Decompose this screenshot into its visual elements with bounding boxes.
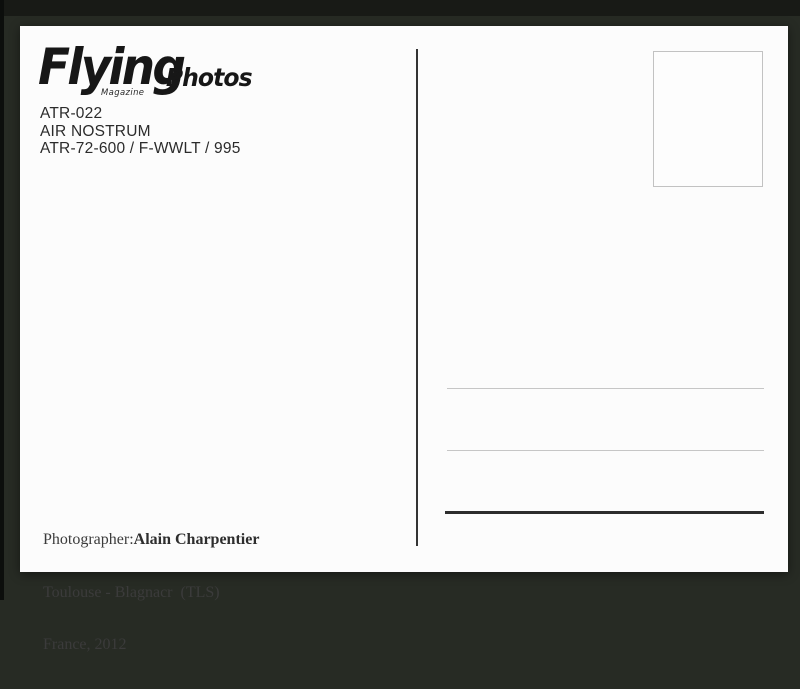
- postcard-back: Flying Photos Magazine ATR-022 AIR NOSTR…: [20, 26, 788, 572]
- brand-suffix: Photos: [166, 65, 252, 90]
- location-line: Toulouse - Blagnacr (TLS): [43, 584, 259, 602]
- date-line: France, 2012: [43, 636, 259, 654]
- photographer-line: Photographer:Alain Charpentier: [43, 531, 259, 549]
- brand-logo: Flying Photos Magazine: [38, 42, 264, 102]
- bottom-rule-line: [445, 511, 764, 514]
- photo-reference: ATR-022: [40, 105, 241, 123]
- address-line-2: [447, 450, 764, 451]
- credits-block: Photographer:Alain Charpentier Toulouse …: [43, 496, 259, 689]
- brand-tagline: Magazine: [101, 89, 144, 98]
- stamp-box: [653, 51, 763, 187]
- photographer-name: Alain Charpentier: [134, 531, 260, 548]
- center-divider-line: [416, 49, 418, 546]
- airline-name: AIR NOSTRUM: [40, 123, 241, 141]
- photographer-label: Photographer:: [43, 531, 134, 548]
- brand-name: Flying: [38, 42, 183, 92]
- photo-backdrop: Flying Photos Magazine ATR-022 AIR NOSTR…: [0, 0, 800, 600]
- aircraft-registration: ATR-72-600 / F-WWLT / 995: [40, 140, 241, 158]
- photo-info-block: ATR-022 AIR NOSTRUM ATR-72-600 / F-WWLT …: [40, 105, 241, 158]
- address-line-1: [447, 388, 764, 389]
